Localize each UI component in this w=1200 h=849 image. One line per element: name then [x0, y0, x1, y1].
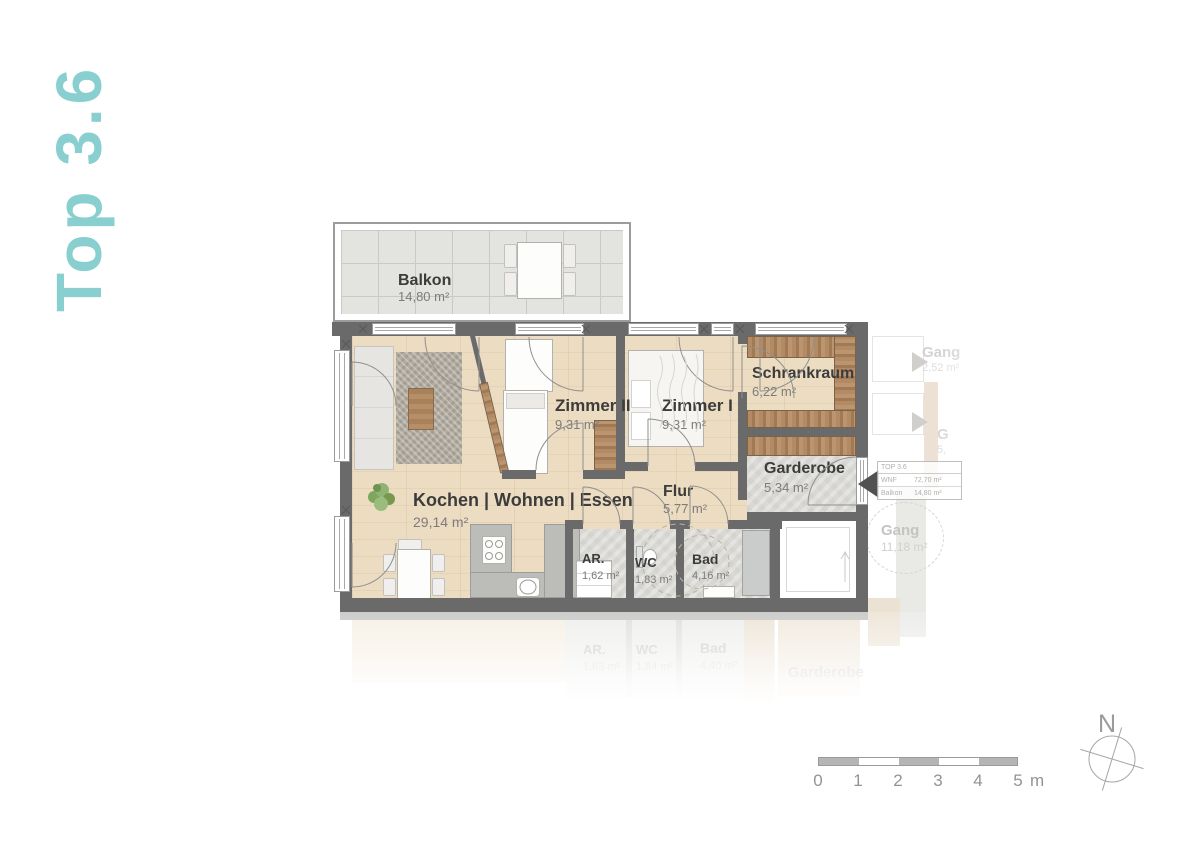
scale-unit-label: m: [1030, 771, 1044, 791]
scale-tick-label: 5: [1013, 771, 1022, 791]
window: [755, 323, 847, 335]
room-label-balkon: Balkon 14,80 m²: [398, 272, 451, 305]
scale-segment: [939, 758, 979, 765]
window: [372, 323, 456, 335]
balcony-chair: [504, 272, 517, 296]
room-label-wc: WC 1,83 m²: [635, 556, 672, 587]
reflection-ghost: AR. 1,63 m² WC 1,84 m² Bad 4,40 m² Garde…: [332, 612, 1072, 712]
room-name: Schrankraum: [752, 365, 854, 383]
scale-tick-label: 1: [853, 771, 862, 791]
room-area: 11,18 m²: [881, 540, 927, 554]
room-area: 5,77 m²: [663, 502, 707, 517]
room-area: 1,83 m²: [635, 574, 672, 587]
scale-tick-label: 3: [933, 771, 942, 791]
wall: [676, 529, 684, 598]
window: [334, 350, 350, 462]
pillow: [631, 412, 651, 440]
kitchen-tall-cabinet: [544, 524, 580, 598]
info-label: WNF: [881, 477, 897, 484]
room-label-zimmer2: Zimmer II 9,31 m²: [555, 396, 631, 432]
arrow-right-icon: [912, 412, 928, 432]
wall: [747, 512, 856, 521]
room-name: WC: [635, 556, 672, 571]
schrankraum-wardrobe: [747, 410, 856, 428]
dining-chair: [383, 554, 396, 572]
wall: [502, 470, 536, 479]
cooktop: [482, 536, 506, 564]
window: [515, 323, 584, 335]
window: [711, 323, 734, 335]
room-label-bad: Bad 4,16 m²: [692, 551, 729, 583]
balcony-chair: [504, 244, 517, 268]
room-area: 1,62 m²: [582, 570, 619, 583]
unit-info-box: TOP 3.6 WNF 72,70 m² Balkon 14,80 m²: [877, 461, 962, 500]
room-area: 6,22 m²: [752, 385, 854, 400]
balcony-table: [517, 242, 562, 299]
scale-tick-label: 2: [893, 771, 902, 791]
entrance-arrow-icon: [858, 470, 879, 498]
room-name: Balkon: [398, 272, 451, 290]
stairwell-inner-outline: [786, 527, 850, 592]
balcony-chair: [563, 272, 576, 296]
room-label-schrankraum: Schrankraum 6,22 m²: [752, 365, 854, 400]
scale-segment: [979, 758, 1017, 765]
wall: [670, 520, 690, 529]
scale-segment: [819, 758, 859, 765]
wall: [340, 598, 868, 612]
wall: [738, 428, 856, 436]
window: [628, 323, 699, 335]
stairwell-room: [780, 521, 856, 598]
wall: [626, 529, 634, 598]
room-name: Gang: [881, 522, 927, 540]
dining-chair: [432, 578, 445, 596]
room-area: 9,31 m²: [555, 418, 631, 433]
wall: [770, 521, 780, 598]
scale-tick-label: 0: [813, 771, 822, 791]
scale-bar: [818, 757, 1018, 766]
floor-plan-page: { "title": "Top 3.6", "rooms": { "balkon…: [0, 0, 1200, 849]
room-name: Bad: [692, 551, 729, 567]
room-name: AR.: [582, 552, 619, 567]
garderobe-wardrobe: [747, 436, 856, 456]
unit-title: Top 3.6: [42, 65, 116, 312]
room-name: Flur: [663, 483, 707, 501]
info-value: 14,80 m²: [914, 490, 942, 497]
room-area: 5,34 m²: [764, 481, 845, 496]
balcony-area: [333, 222, 631, 322]
dining-chair: [383, 578, 396, 596]
info-label: Balkon: [881, 490, 902, 497]
compass-north-label: N: [1098, 710, 1116, 739]
sofa: [354, 346, 394, 470]
wall: [565, 529, 573, 598]
scale-segment: [859, 758, 899, 765]
wall: [738, 436, 747, 500]
room-name: Kochen | Wohnen | Essen: [413, 490, 633, 511]
room-area: 4,16 m²: [692, 570, 729, 583]
room-label-garderobe: Garderobe 5,34 m²: [764, 460, 845, 496]
shower: [742, 530, 770, 596]
room-label-ar: AR. 1,62 m²: [582, 552, 619, 583]
room-area: 29,14 m²: [413, 514, 633, 530]
kitchen-sink: [516, 577, 540, 597]
dining-chair: [432, 554, 445, 572]
reflection-fade-overlay: [332, 612, 1072, 712]
balcony-chair: [563, 244, 576, 268]
desk-zimmer2: [505, 339, 553, 392]
room-name: Zimmer I: [662, 396, 733, 416]
room-area: 9,31 m²: [662, 418, 733, 433]
room-label-zimmer1: Zimmer I 9,31 m²: [662, 396, 733, 432]
unit-info-row-balkon: Balkon 14,80 m²: [878, 488, 961, 500]
pillow: [506, 393, 545, 409]
scale-tick-label: 4: [973, 771, 982, 791]
unit-info-title: TOP 3.6: [878, 462, 961, 474]
room-name: Garderobe: [764, 460, 845, 478]
pillow: [631, 380, 651, 408]
compass-circle: [1089, 736, 1135, 782]
neighbour-label-gang-lower: Gang 11,18 m²: [881, 522, 927, 554]
room-label-wohnen: Kochen | Wohnen | Essen 29,14 m²: [413, 490, 633, 530]
room-area: 14,80 m²: [398, 290, 451, 305]
room-name: Zimmer II: [555, 396, 631, 416]
dining-table: [397, 549, 431, 600]
scale-segment: [899, 758, 939, 765]
room-label-flur: Flur 5,77 m²: [663, 483, 707, 517]
coffee-table: [408, 388, 434, 430]
balcony-tile-floor: [341, 230, 623, 314]
bad-washbasin: [703, 586, 735, 598]
wall: [625, 462, 648, 471]
window: [334, 516, 350, 592]
wall: [738, 336, 747, 344]
unit-info-row-wnf: WNF 72,70 m²: [878, 475, 961, 487]
info-value: 72,70 m²: [914, 477, 942, 484]
